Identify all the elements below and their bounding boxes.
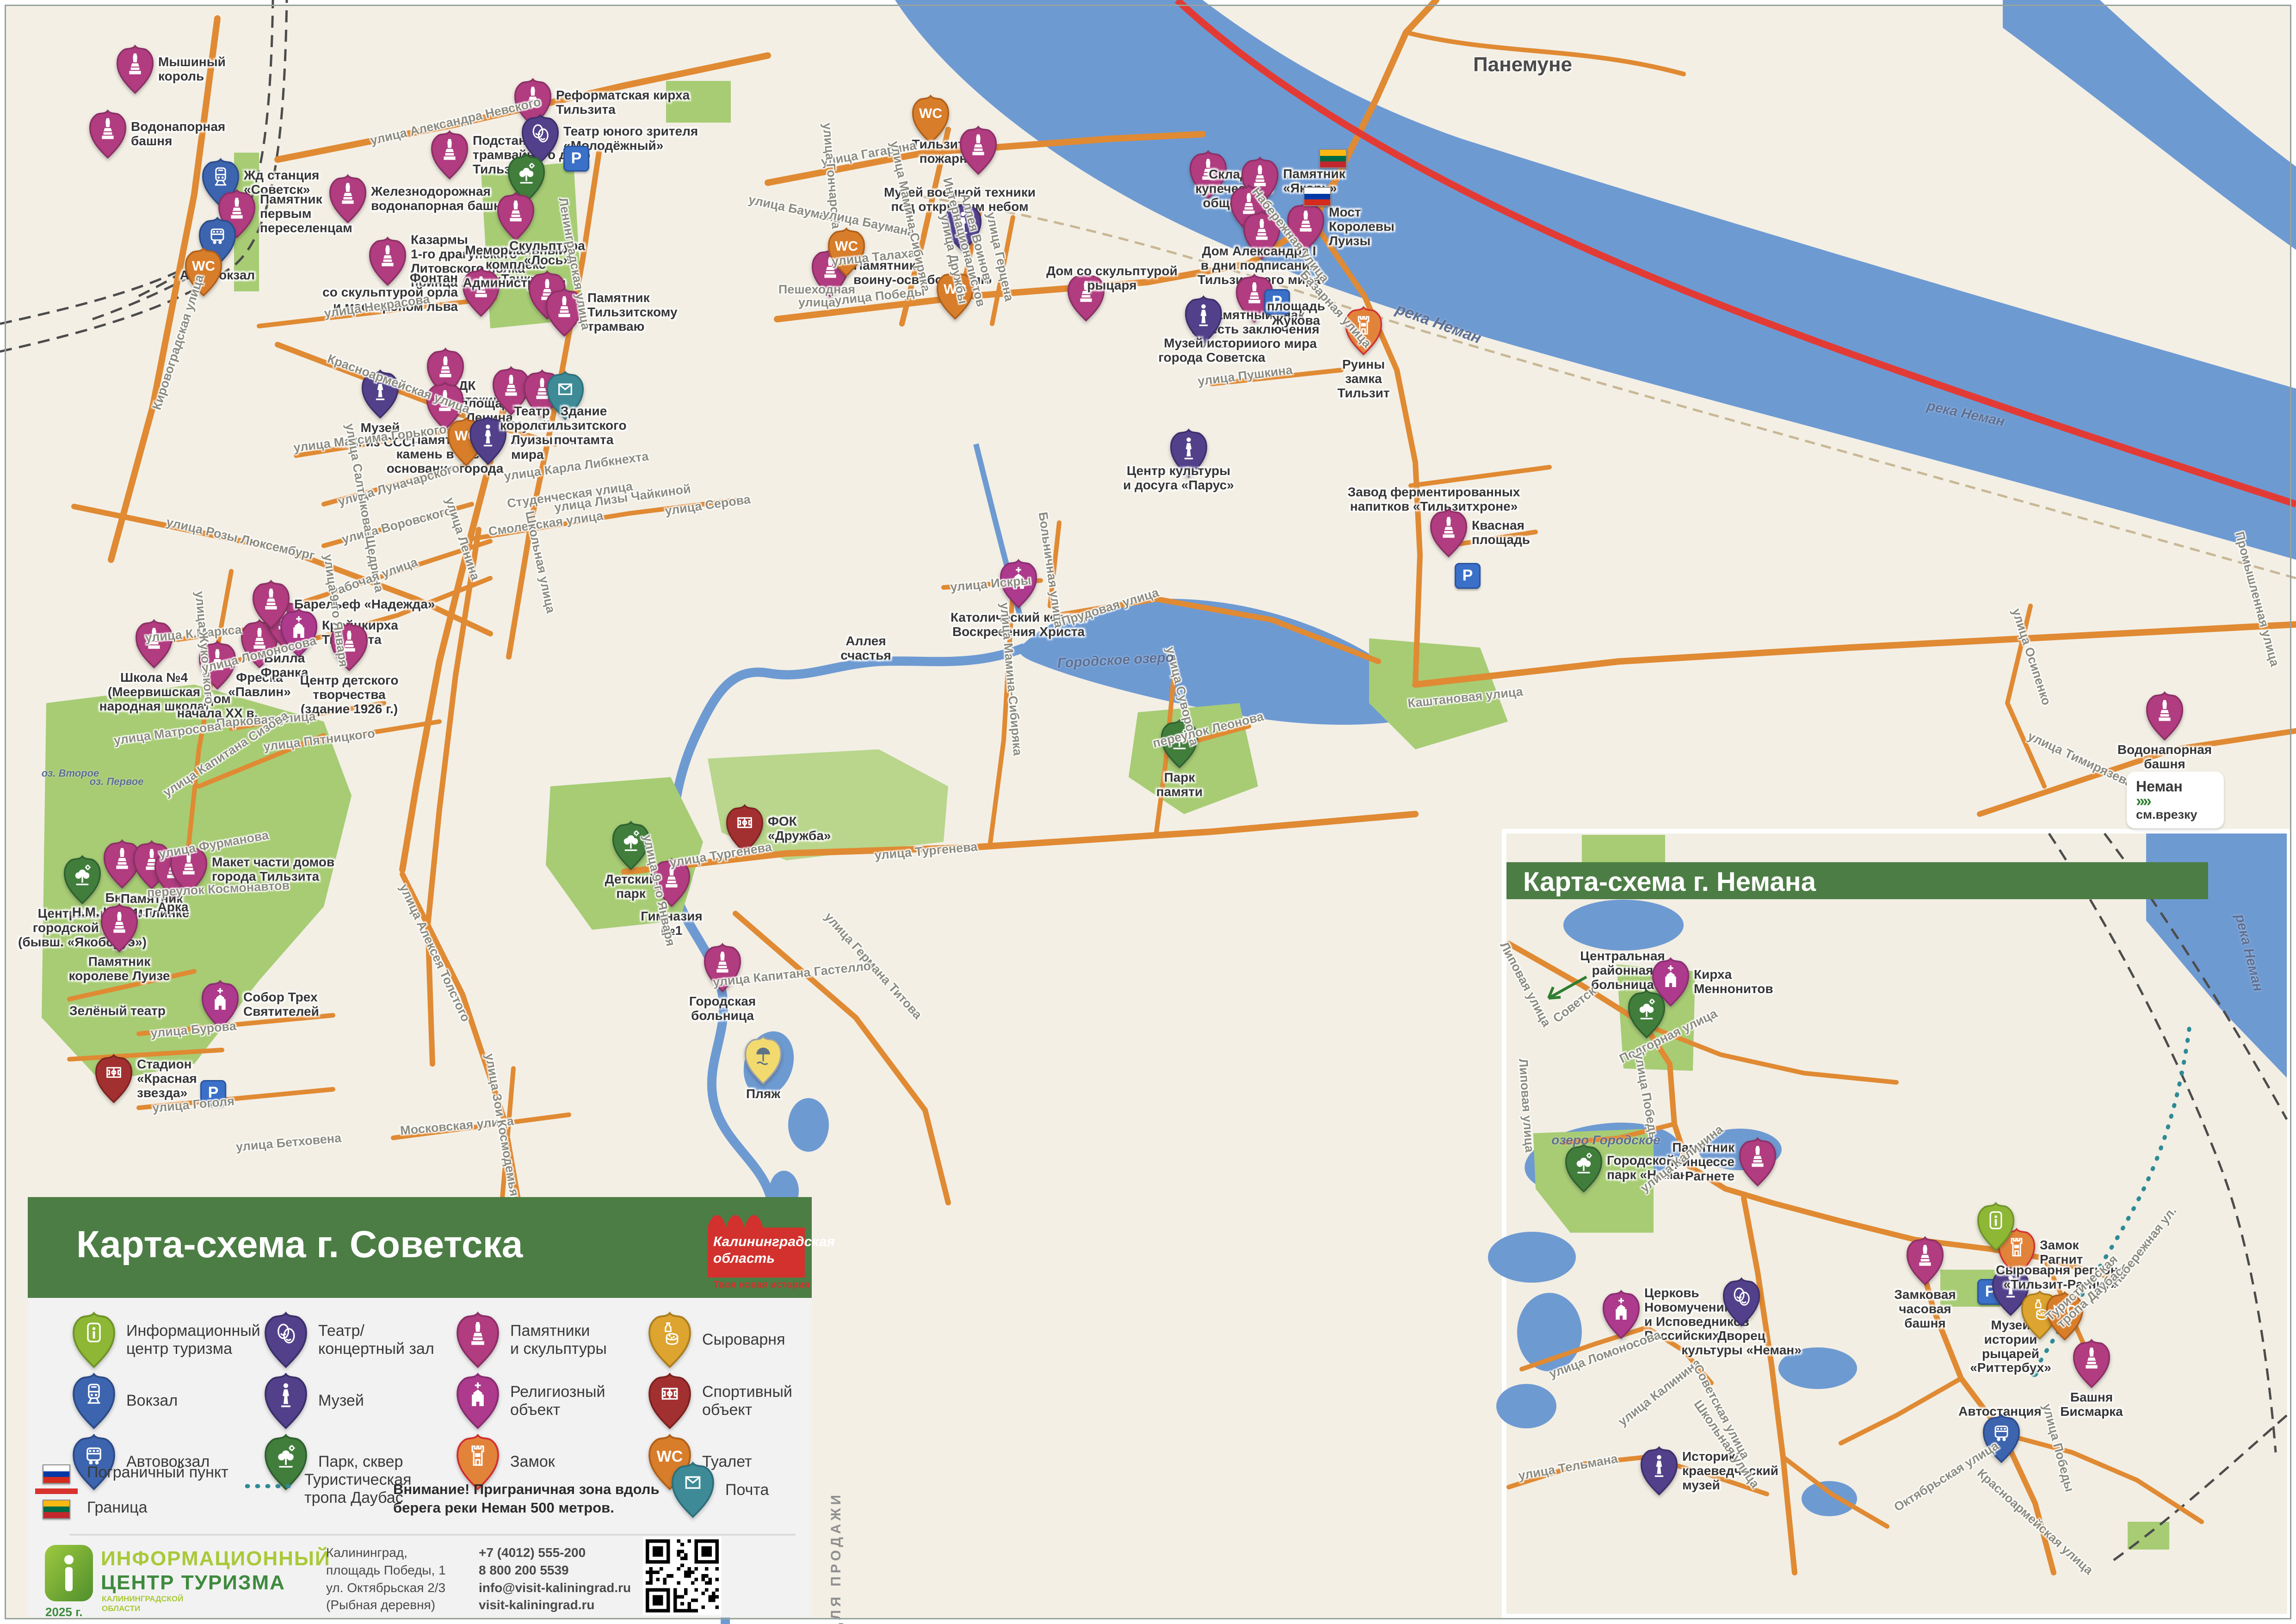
legend-item-inf: Информационный центр туризма (72, 1311, 260, 1369)
qr-code (643, 1537, 722, 1615)
street-label: улица Матросова (113, 719, 222, 747)
parking-icon[interactable]: P (1455, 563, 1481, 589)
poi-marker-mus[interactable] (1640, 1445, 1679, 1496)
street-label: улица Победы (1632, 1051, 1661, 1143)
main-banner: Карта-схема г. Советска Калининградская … (28, 1197, 812, 1298)
svg-text:область: область (713, 1251, 775, 1266)
legend-item-trn: Вокзал (72, 1372, 178, 1430)
poi-marker-mon[interactable] (462, 267, 500, 318)
poi-label: Мышиный король (158, 55, 226, 84)
poi-marker-mon[interactable] (1429, 507, 1468, 558)
poi-label: Пляж (746, 1087, 780, 1101)
poi-marker-mon[interactable] (116, 44, 154, 95)
poi-label: Стадион «Красная звезда» (137, 1057, 197, 1100)
street-label: улица Пушкина (1197, 363, 1293, 388)
poi-label: Водонапорная башня (2117, 743, 2212, 772)
poi-label: Памятник первым переселенцам (260, 192, 352, 235)
callout-see-inset: см.врезку (2136, 808, 2215, 822)
legend-border-label2: Граница (87, 1499, 147, 1517)
area-label: Панемуне (1473, 53, 1572, 76)
water-label: оз. Первое (90, 776, 144, 788)
water-label: река Неман (1393, 300, 1483, 348)
poi-marker-mon[interactable] (1738, 1136, 1777, 1187)
legend-item-mus: Музей (264, 1372, 364, 1430)
poi-label: Памятник королеве Луизе (69, 955, 170, 983)
legend-post-label: Почта (725, 1481, 769, 1499)
street-label: улица Бетховена (235, 1131, 342, 1154)
legend-panel: Информационный центр туризма Вокзал Авто… (28, 1298, 812, 1618)
neman-inset-callout: Неман »» см.врезку (2127, 772, 2224, 828)
poi-label: Собор Трех Святителей (243, 990, 319, 1019)
poi-label: Квасная площадь (1472, 519, 1530, 547)
footer-contacts: +7 (4012) 555-200 8 800 200 5539 info@vi… (479, 1544, 631, 1614)
street-label: улица Розы Люксембург (165, 515, 316, 562)
lithuania-flag-icon (43, 1500, 70, 1519)
page-title: Карта-схема г. Советска (76, 1223, 523, 1266)
legend-divider (69, 1534, 796, 1536)
legend-item-thr: Театр/ концертный зал (264, 1311, 434, 1369)
water-label: река Неман (2232, 913, 2266, 993)
info-center-logo (44, 1544, 94, 1605)
poi-marker-mon[interactable] (430, 130, 469, 180)
legend-border-label1: Пограничный пункт (87, 1463, 228, 1482)
footer-org-line1: ИНФОРМАЦИОННЫЙ (101, 1545, 331, 1572)
poi-marker-mon[interactable] (88, 109, 127, 160)
poi-marker-mon[interactable] (496, 191, 535, 242)
poi-marker-mon[interactable] (2072, 1338, 2111, 1389)
street-label: Смоленская улица (488, 509, 604, 538)
kaliningrad-region-logo: Калининградская область Твоя новая истор… (703, 1204, 842, 1294)
street-label: улица Тельмана (1517, 1452, 1618, 1482)
poi-label: Водонапорная башня (131, 120, 225, 148)
street-label: Красноармейская улица (1975, 1466, 2095, 1577)
street-label: улица Бурова (150, 1019, 237, 1040)
russia-flag (1303, 187, 1331, 206)
poi-label: Реформатская кирха Тильзита (556, 88, 690, 117)
footer-org-line3: КАЛИНИНГРАДСКОЙ ОБЛАСТИ (102, 1594, 183, 1614)
street-label: Прудовая улица (1060, 586, 1160, 628)
street-label: улица Осипенко (2010, 607, 2053, 707)
water-label: река Неман (1926, 398, 2006, 430)
poi-label: ФОК «Дружба» (768, 815, 831, 843)
legend-post-item: Почта (671, 1461, 715, 1519)
map-page: Карта-схема г. Немана Неман »» см.врезку… (0, 0, 2296, 1624)
parking-icon[interactable]: P (563, 146, 589, 172)
street-label: улица Калинина (1616, 1356, 1703, 1428)
poi-label: Музей истории города Советска (1158, 336, 1265, 365)
footer-year: 2025 г. (45, 1604, 83, 1620)
poi-label: Арка (158, 900, 189, 914)
poi-label: Зелёный театр (69, 1004, 166, 1019)
legend-item-bus: Автовокзал (72, 1433, 210, 1491)
poi-marker-rel[interactable] (1602, 1289, 1641, 1340)
street-label: улица Алексея Толстого (397, 882, 473, 1024)
street-label: улица Тургенева (668, 840, 772, 870)
border-line-icon (35, 1488, 78, 1494)
svg-text:Твоя новая история: Твоя новая история (713, 1279, 810, 1290)
street-label: Советск (1551, 984, 1599, 1025)
street-label: улица Ленина (443, 496, 482, 582)
not-for-sale-label: НЕ ДЛЯ ПРОДАЖИ (828, 1492, 844, 1624)
trail-line-icon (245, 1483, 296, 1489)
street-label: Пешеходная улица (778, 283, 855, 309)
lithuania-flag (1319, 149, 1347, 168)
street-label: Липовая улица (1498, 940, 1553, 1029)
poi-marker-prk[interactable] (1564, 1142, 1603, 1193)
street-label: Каштановая улица (1407, 685, 1524, 710)
poi-marker-bch[interactable] (744, 1035, 783, 1086)
street-label: Липовая улица (1517, 1058, 1536, 1153)
poi-label: Аллея счастья (840, 634, 891, 663)
poi-label: Замковая часовая башня (1894, 1288, 1956, 1330)
poi-label: Башня Бисмарка (2060, 1390, 2123, 1419)
poi-marker-inf[interactable] (1976, 1201, 2015, 1252)
poi-marker-mon[interactable] (2145, 691, 2184, 741)
street-label: улица Тургенева (874, 840, 978, 862)
poi-label: Руины замка Тильзит (1337, 358, 1389, 400)
footer-address: Калининград, площадь Победы, 1 ул. Октяб… (326, 1544, 446, 1614)
poi-label: Мост Королевы Луизы (1329, 205, 1395, 248)
poi-label: Городская больница (689, 994, 756, 1023)
poi-marker-mon[interactable] (1906, 1235, 1944, 1286)
street-label: Промышленная улица (2233, 530, 2281, 668)
russia-flag-icon (43, 1464, 70, 1484)
poi-marker-mon[interactable] (100, 902, 139, 953)
legend-warning-text: Внимание! Приграничная зона вдоль берега… (393, 1480, 660, 1518)
poi-label: Памятник Тильзитскому трамваю (587, 291, 678, 333)
poi-label: Дворец культуры «Неман» (1681, 1329, 1802, 1358)
post-icon (671, 1461, 715, 1519)
street-label: Кировоградская улица (150, 273, 206, 411)
poi-label: Парк памяти (1156, 771, 1203, 799)
poi-label: Дом со скульптурой рыцаря (1046, 264, 1178, 293)
poi-label: Здание тильзитского почтамта (541, 404, 626, 447)
callout-arrow-icon: »» (2136, 795, 2215, 808)
street-label: улица Пятницкого (263, 727, 376, 753)
water-label: озеро Городское (1551, 1133, 1660, 1148)
poi-marker-thr[interactable] (1722, 1277, 1761, 1328)
legend-item-rel: Религиозный объект (456, 1372, 605, 1430)
water-label: Городское озеро (1057, 649, 1174, 671)
legend-item-spt: Спортивный объект (648, 1372, 792, 1430)
poi-label: Кирха Меннонитов (1694, 968, 1773, 996)
poi-label: Центр культуры и досуга «Парус» (1123, 464, 1234, 493)
footer-org-line2: ЦЕНТР ТУРИЗМА (101, 1569, 285, 1596)
poi-label: площадь Жукова (1267, 299, 1325, 328)
legend-item-chs: Сыроварня (648, 1311, 785, 1369)
street-label: улица Воровского (340, 504, 453, 546)
svg-text:Калининградская: Калининградская (713, 1234, 835, 1249)
poi-marker-mon[interactable] (959, 125, 998, 176)
poi-label: Железнодорожная водонапорная башня (371, 185, 509, 213)
legend-trail-item: Туристическая тропа Даубас (245, 1483, 296, 1492)
poi-marker-spt[interactable] (94, 1053, 133, 1104)
legend-item-mon: Памятники и скульптуры (456, 1311, 607, 1369)
